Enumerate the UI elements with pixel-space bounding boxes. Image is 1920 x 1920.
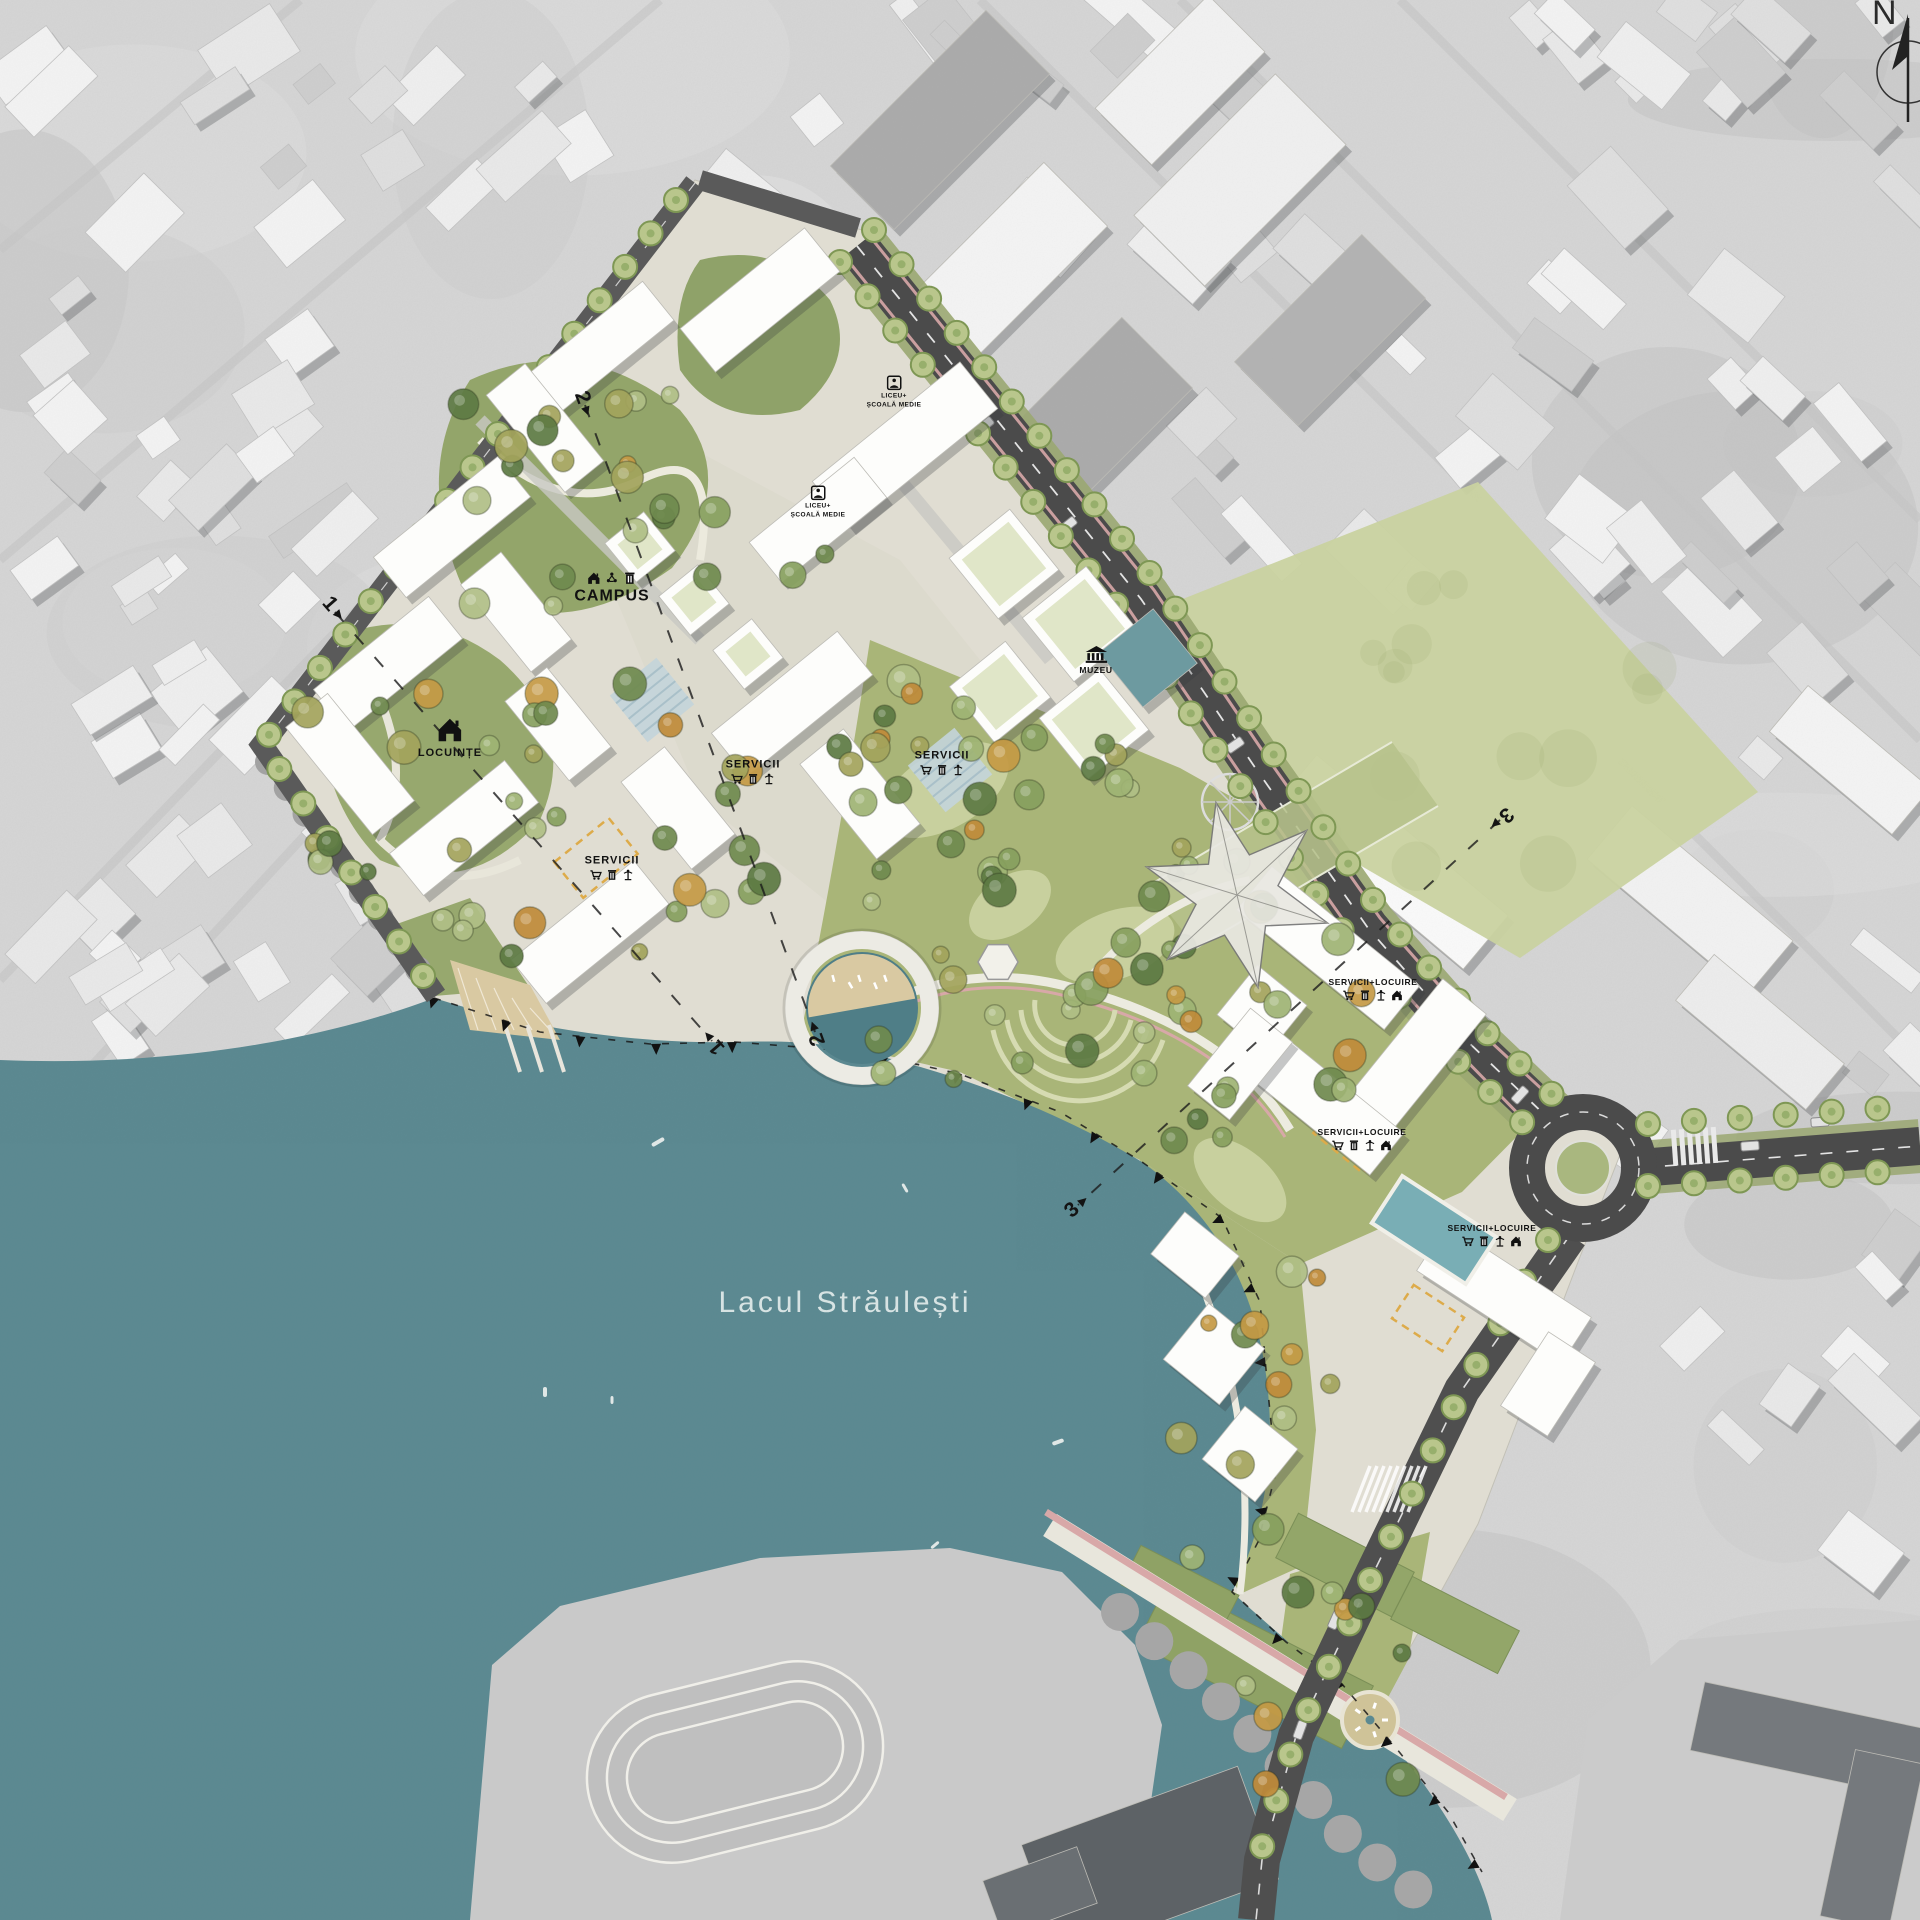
reader-icon [886,375,901,390]
cart-icon [1462,1235,1475,1248]
museum-icon [1084,645,1108,664]
cart-icon [1332,1139,1345,1152]
shop-icon [1359,989,1372,1002]
site-plan-drawing [0,0,1920,1920]
shop-icon [623,571,638,586]
campus-icon-row [587,571,638,586]
label-liceu-2: LICEU+ ȘCOALĂ MEDIE [791,485,846,518]
masterplan-canvas: CAMPUS LOCUINȚE SERVICII SERVICII SERVIC… [0,0,1920,1920]
north-compass: N [1842,0,1920,140]
circular-pier [784,930,940,1086]
recycle-icon [605,571,620,586]
label-servicii-3: SERVICII [585,854,640,881]
shop-icon [936,764,949,777]
house-icon [1391,989,1404,1002]
reader-icon [810,485,825,500]
fountain-icon [1364,1139,1377,1152]
label-liceu-1: LICEU+ ȘCOALĂ MEDIE [867,375,922,408]
label-servicii-locuire-3: SERVICII+LOCUIRE [1447,1224,1536,1248]
label-muzeu: MUZEU [1079,645,1112,675]
house-icon [435,715,465,745]
servicii-locuire-icon-row [1332,1139,1393,1152]
label-locuinte: LOCUINȚE [418,715,482,759]
label-servicii-locuire-1: SERVICII+LOCUIRE [1328,978,1417,1002]
house-icon [1380,1139,1393,1152]
shop-icon [1478,1235,1491,1248]
label-servicii-1: SERVICII [726,758,781,785]
servicii-locuire-icon-row [1343,989,1404,1002]
shop-icon [1348,1139,1361,1152]
cart-icon [590,869,603,882]
servicii-icon-row [920,764,965,777]
servicii-locuire-icon-row [1462,1235,1523,1248]
cart-icon [731,773,744,786]
label-campus: CAMPUS [574,571,649,606]
shop-icon [747,773,760,786]
cart-icon [920,764,933,777]
liceu-icon-row [886,375,901,390]
servicii-icon-row [590,869,635,882]
locuinte-icon-row [435,715,465,745]
cart-icon [1343,989,1356,1002]
fountain-icon [952,764,965,777]
shop-icon [606,869,619,882]
muzeu-icon-row [1084,645,1108,664]
house-icon [587,571,602,586]
locuinte-label-text: LOCUINȚE [418,747,482,759]
liceu-icon-row [810,485,825,500]
campus-label-text: CAMPUS [574,588,649,606]
servicii-icon-row [731,773,776,786]
fountain-icon [622,869,635,882]
house-icon [1510,1235,1523,1248]
label-servicii-locuire-2: SERVICII+LOCUIRE [1317,1128,1406,1152]
north-label: N [1872,0,1897,33]
fountain-icon [1375,989,1388,1002]
lake-name-label: Lacul Străulești [718,1286,971,1320]
label-servicii-2: SERVICII [915,749,970,776]
fountain-icon [763,773,776,786]
fountain-icon [1494,1235,1507,1248]
